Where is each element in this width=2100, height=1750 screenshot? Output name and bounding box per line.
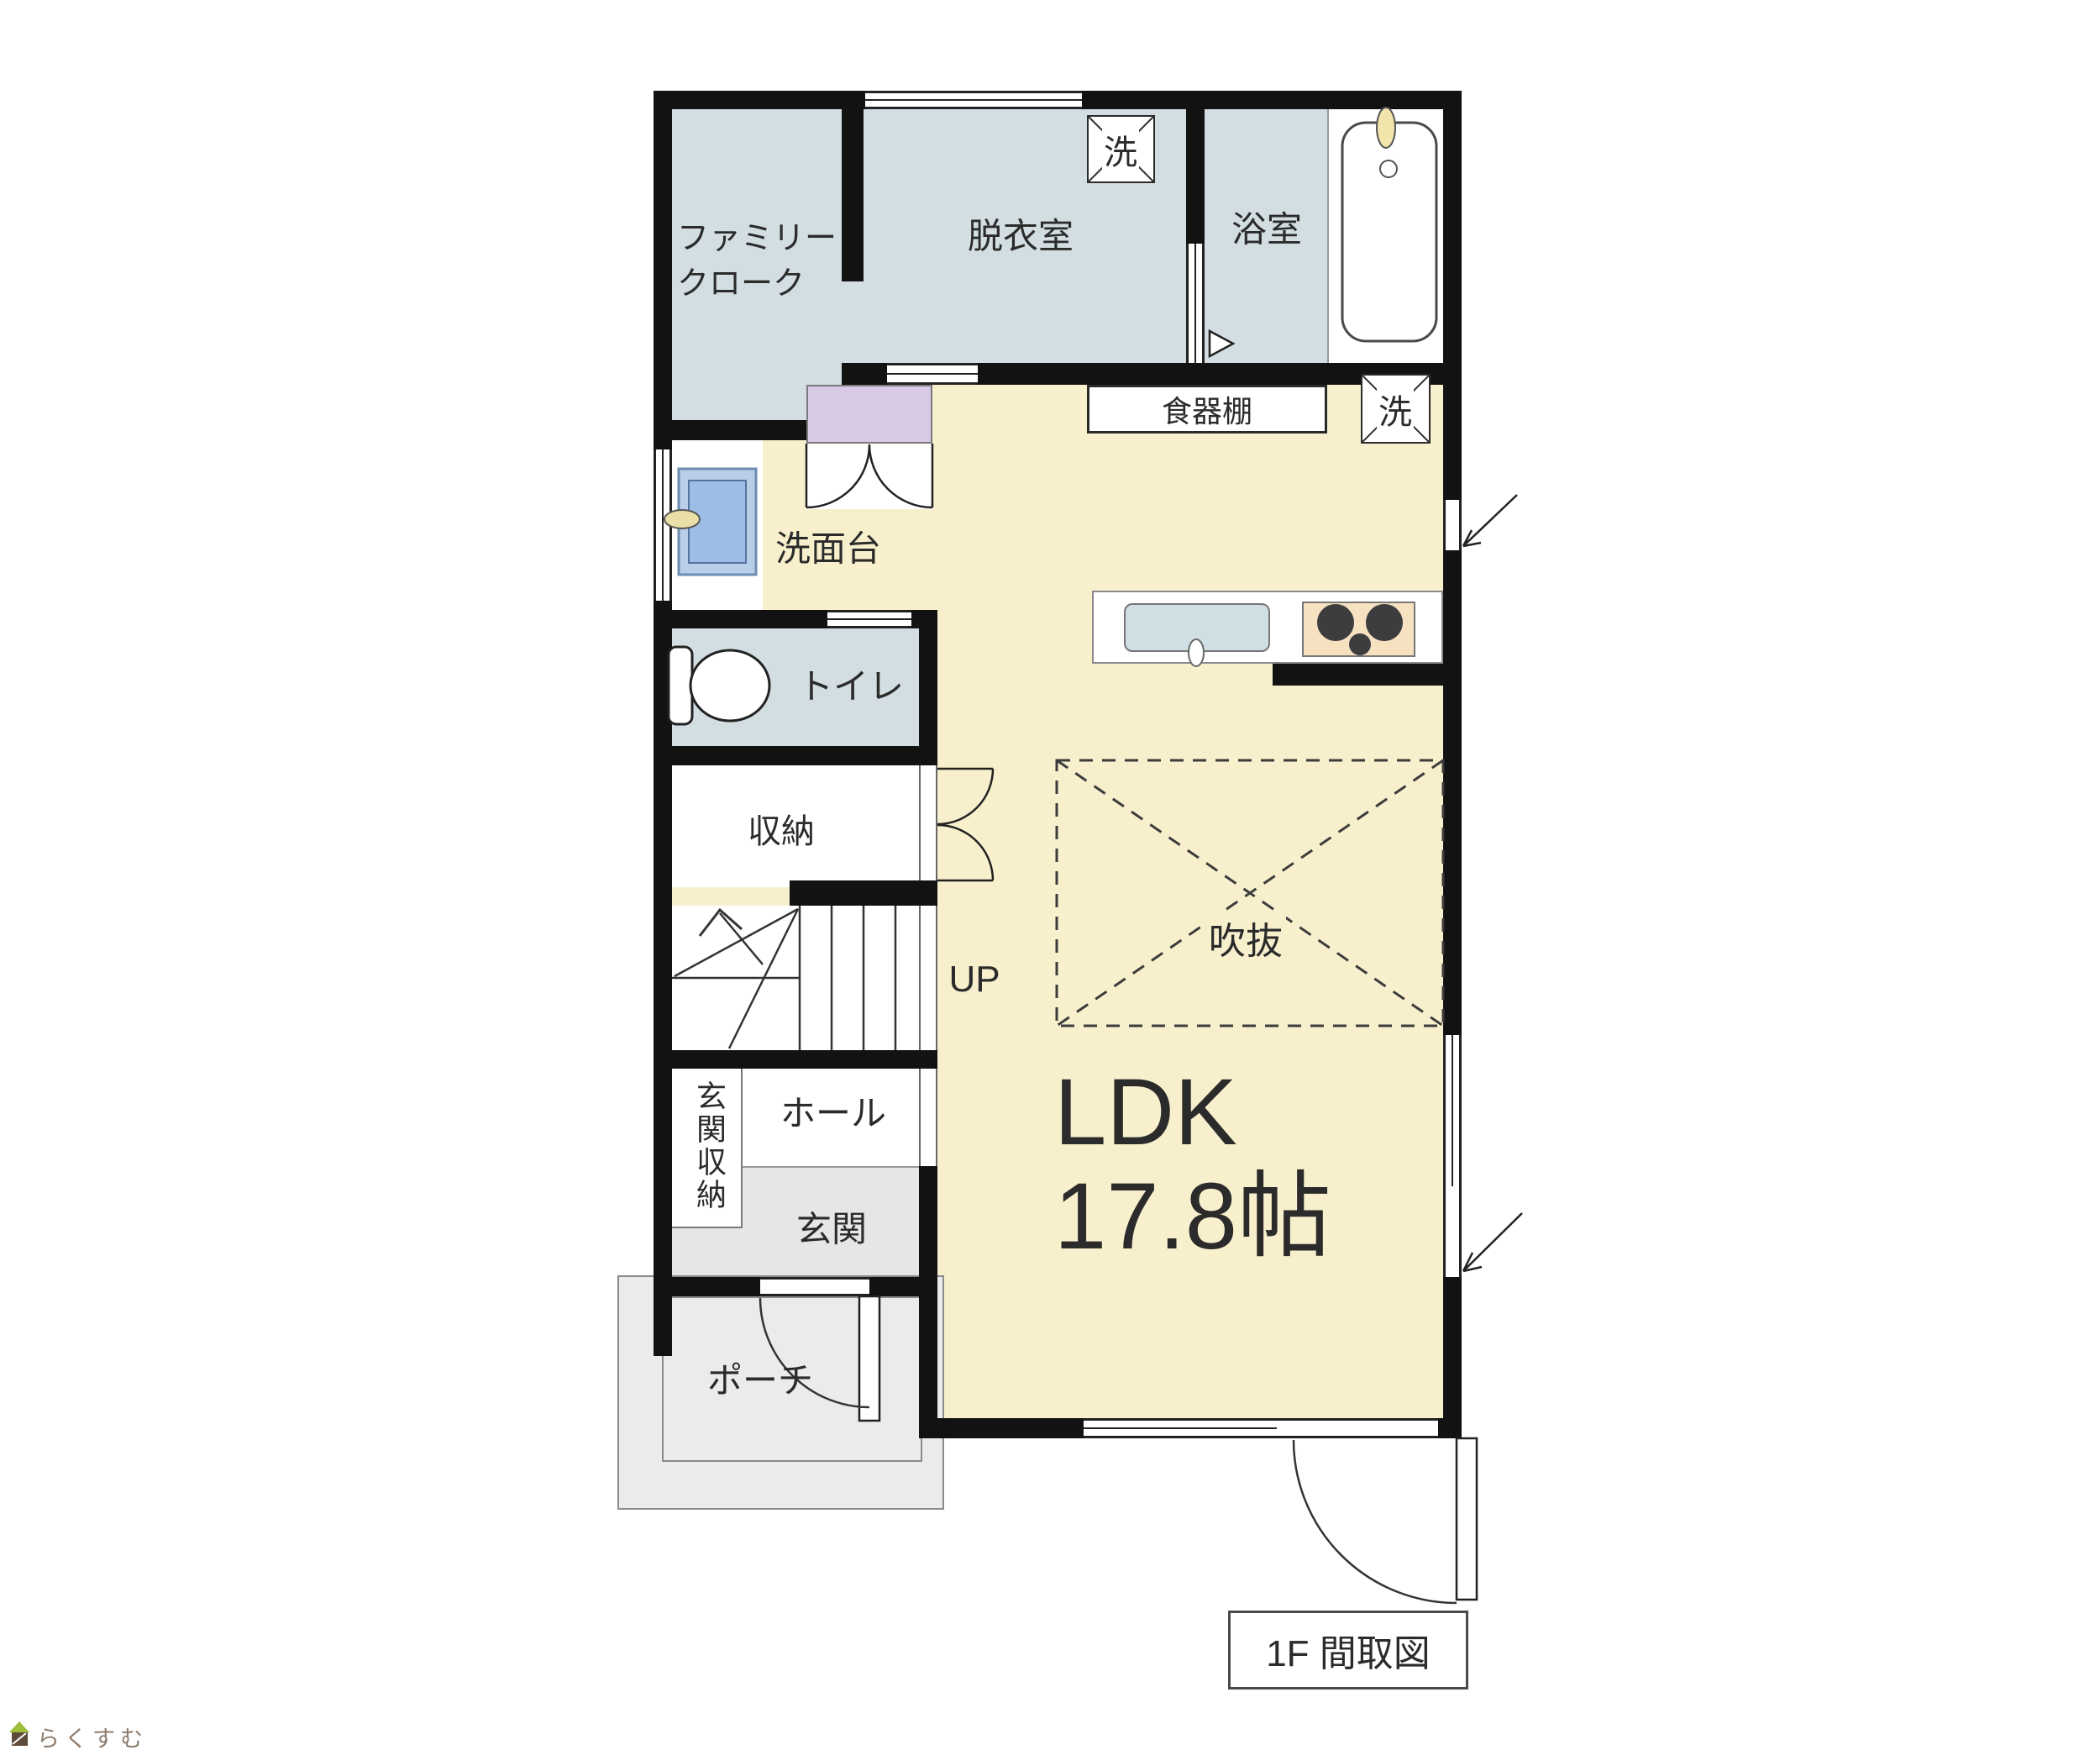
label-caption: 1F 間取図: [1266, 1623, 1431, 1677]
label-watermark: らくすむ: [37, 1721, 148, 1750]
label-entrance-storage: 玄関収納: [687, 1080, 731, 1211]
label-storage: 収納: [748, 804, 815, 853]
label-bathroom: 浴室: [1231, 202, 1302, 253]
label-entrance: 玄関: [796, 1201, 867, 1253]
sink-faucet-icon: [1189, 639, 1204, 666]
bathtub-icon: [1342, 108, 1436, 341]
label-ldk-name: LDK: [1054, 1065, 1237, 1159]
bath-door-arrow-icon: [1210, 331, 1233, 356]
label-family-closet-line1: ファミリー: [677, 212, 837, 258]
floorplan-canvas: ファミリー クローク 脱衣室 浴室 洗 洗 食器棚 洗面台 トイレ 収納 UP …: [0, 0, 2100, 1750]
plan-linework: [0, 0, 2100, 1750]
bath-drain-icon: [1380, 160, 1397, 177]
watermark-house-icon: [9, 1721, 29, 1746]
void-dashed-outline: [1057, 760, 1443, 1026]
toilet-icon: [669, 647, 769, 724]
label-dish-cabinet: 食器棚: [1162, 387, 1252, 431]
stairs-icon: [672, 906, 895, 1050]
label-ldk-size: 17.8帖: [1054, 1169, 1331, 1264]
label-washer-2: 洗: [1377, 385, 1414, 434]
stove-burners-icon: [1317, 604, 1403, 655]
casement-arrow-ldk: [1463, 1213, 1522, 1271]
washstand-icon: [664, 469, 756, 575]
label-void: 吹抜: [1205, 911, 1286, 964]
label-washstand: 洗面台: [775, 521, 881, 572]
label-family-closet-line2: クローク: [677, 257, 805, 303]
bath-faucet-icon: [1377, 108, 1395, 148]
casement-arrow-kitchen: [1463, 495, 1517, 546]
label-washer-1: 洗: [1102, 125, 1139, 174]
label-dressing-room: 脱衣室: [968, 208, 1074, 260]
label-stairs-up: UP: [948, 959, 1000, 1001]
double-door-storage: [937, 769, 993, 880]
label-hall: ホール: [780, 1085, 886, 1137]
label-porch: ポーチ: [707, 1353, 813, 1404]
label-toilet: トイレ: [798, 659, 904, 710]
terrace-door: [1294, 1438, 1477, 1603]
double-door-washstand: [806, 444, 932, 509]
